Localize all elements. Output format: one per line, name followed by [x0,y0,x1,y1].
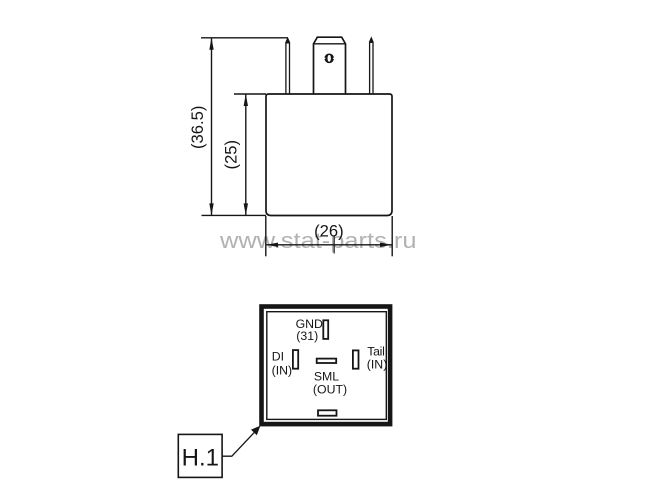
svg-text:(26): (26) [314,222,344,241]
svg-text:(25): (25) [222,140,241,170]
svg-text:Tail: Tail [367,345,384,359]
svg-text:H.1: H.1 [182,444,219,471]
svg-text:DI: DI [272,349,284,363]
svg-text:(IN): (IN) [367,358,388,372]
svg-text:(36.5): (36.5) [188,106,207,149]
svg-text:(31): (31) [296,329,318,343]
svg-text:(IN): (IN) [272,363,293,377]
svg-text:(OUT): (OUT) [313,382,347,396]
svg-text:SML: SML [314,369,339,383]
